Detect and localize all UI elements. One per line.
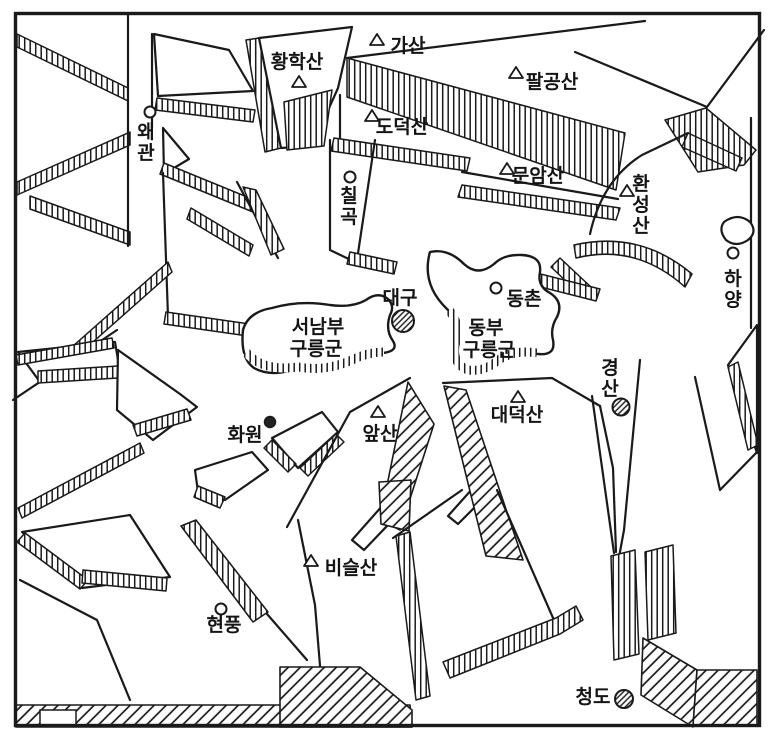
label-dodeoksan: 도덕산	[376, 116, 429, 138]
label-palgongsan: 팔공산	[526, 71, 579, 93]
lowland-flat	[693, 670, 757, 726]
city-marker-cheongdo-icon	[615, 690, 633, 708]
label-gasan: 가산	[391, 35, 426, 57]
label-munamsan: 문암산	[512, 165, 565, 187]
diagonal-scarp	[379, 480, 411, 531]
town-marker-waegwan-icon	[145, 107, 156, 118]
label-daedeoksan: 대덕산	[491, 404, 544, 426]
block-diagram-map: 황학산 가산 팔공산 도덕산 문암산 환성산 대덕산 앞산 비슬산 왜관 칠곡 …	[0, 0, 779, 742]
town-marker-chilgok-icon	[345, 172, 356, 183]
label-apsan: 앞산	[363, 423, 398, 445]
label-hwanseongsan: 환성산	[632, 173, 650, 237]
map-page: 황학산 가산 팔공산 도덕산 문암산 환성산 대덕산 앞산 비슬산 왜관 칠곡 …	[0, 0, 779, 742]
label-chilgok: 칠곡	[340, 185, 357, 228]
fault-scarp-band	[645, 545, 676, 640]
label-hayang: 하양	[724, 268, 742, 311]
label-daegu: 대구	[383, 287, 418, 309]
city-marker-daegu-icon	[392, 310, 414, 332]
town-marker-hyeonpung-icon	[216, 604, 227, 615]
label-hyeonpung: 현풍	[207, 614, 242, 636]
label-dongbu-hills-line2: 구릉군	[463, 339, 515, 361]
lowland-notch	[40, 710, 76, 726]
small-knoll-outline	[721, 217, 753, 244]
label-dongchon: 동촌	[507, 288, 542, 310]
label-cheongdo: 청도	[576, 686, 611, 708]
label-hwanghaksan: 황학산	[271, 50, 324, 73]
fault-scarp-band	[611, 550, 639, 660]
label-seonambu-hills-line1: 서남부	[292, 316, 344, 338]
town-marker-hayang-icon	[728, 248, 739, 259]
label-seonambu-hills-line2: 구릉군	[290, 338, 342, 360]
label-hwawon: 화원	[228, 424, 263, 446]
label-dongbu-hills-line1: 동부	[469, 318, 504, 339]
label-waegwan: 왜관	[137, 121, 155, 164]
town-marker-dongchon-icon	[491, 283, 502, 294]
label-biseulsan: 비슬산	[325, 557, 378, 579]
town-marker-hwawon-icon	[265, 417, 276, 428]
city-marker-gyeongsan-icon	[613, 399, 630, 416]
label-gyeongsan: 경산	[601, 357, 619, 400]
